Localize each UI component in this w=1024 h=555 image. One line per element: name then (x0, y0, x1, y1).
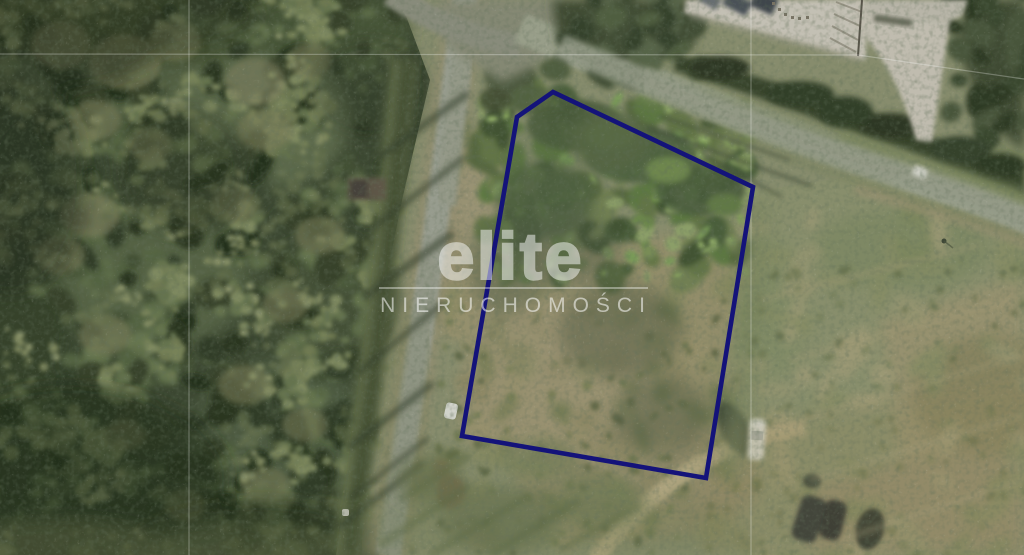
svg-text:elite: elite (437, 219, 584, 293)
svg-text:NIERUCHOMOŚCI: NIERUCHOMOŚCI (380, 293, 652, 317)
